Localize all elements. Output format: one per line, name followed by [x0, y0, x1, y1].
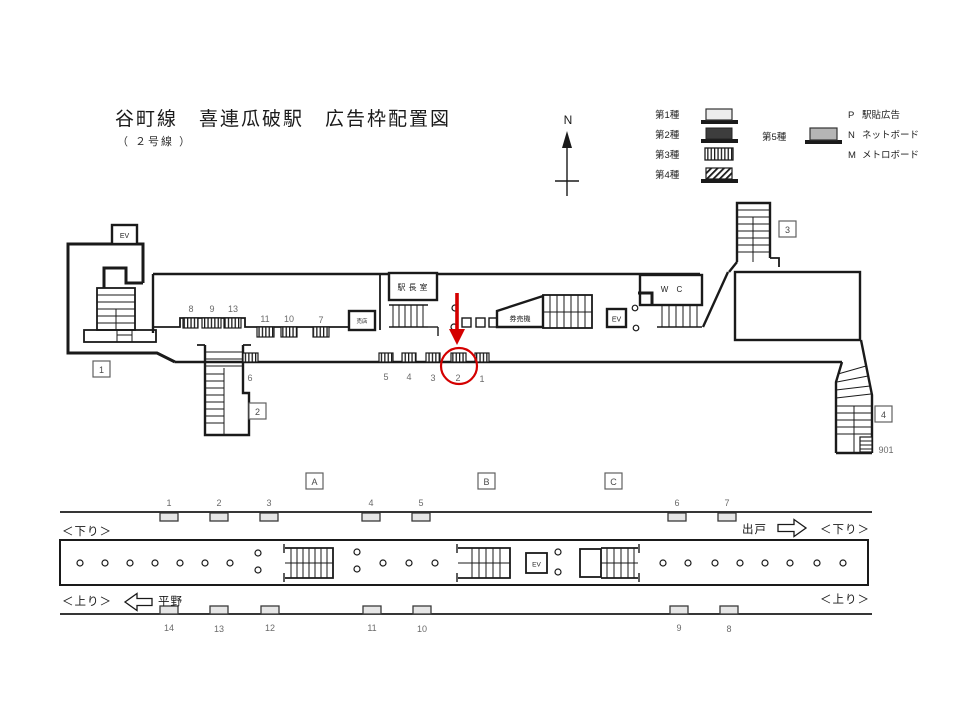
- ad-6-num: 6: [247, 373, 252, 383]
- poster-slot-10: [413, 606, 431, 614]
- left-stairs-icon: [84, 288, 156, 342]
- poster-slot-12: [261, 606, 279, 614]
- highlight-marker: [441, 293, 477, 384]
- ad-slot-8: [183, 318, 198, 328]
- poster-slot-1: [160, 513, 178, 521]
- ad-901-label: 901: [878, 445, 893, 455]
- platform-top-ad-slots: 1 2 3 4 5 6 7: [160, 498, 736, 521]
- section-c-label: C: [610, 477, 617, 487]
- legend-code-n: N: [848, 130, 855, 141]
- legend-type3-label: 第3種: [655, 149, 680, 161]
- poster-1-num: 1: [166, 498, 171, 508]
- highlight-arrow-head: [449, 329, 465, 345]
- ad-3-num: 3: [430, 373, 435, 383]
- up-right-label: ＜上り＞: [820, 593, 870, 606]
- station-ad-layout-diagram: 谷町線 喜連瓜破駅 広告枠配置図 （ ２号線 ） N 第1種 第2種 第3種 第…: [0, 0, 960, 720]
- poster-2-num: 2: [216, 498, 221, 508]
- right-room: [735, 272, 860, 340]
- ad-slot-5: [379, 353, 393, 362]
- poster-3-num: 3: [266, 498, 271, 508]
- poster-6-num: 6: [674, 498, 679, 508]
- next-station-up: 平野: [158, 595, 183, 608]
- north-compass-icon: N: [555, 113, 579, 196]
- down-right-label: ＜下り＞: [820, 523, 870, 536]
- legend-type1-label: 第1種: [655, 109, 680, 121]
- station-master-label: 駅長室: [398, 282, 431, 292]
- wc-room: W C: [638, 275, 702, 327]
- poster-10-num: 10: [417, 624, 427, 634]
- legend-code-m: M: [848, 150, 856, 161]
- legend-type2-bar: [701, 139, 738, 143]
- legend-type4-bar: [701, 179, 738, 183]
- next-station-down: 出戸: [742, 522, 767, 536]
- gate-frame: [462, 318, 471, 327]
- legend-type4-label: 第4種: [655, 169, 680, 181]
- poster-slot-11: [363, 606, 381, 614]
- ad-slot-7: [313, 327, 329, 337]
- ad-10-num: 10: [284, 314, 294, 324]
- concourse-upper-ad-slots: 8 9 13 11 10 7: [183, 304, 329, 337]
- poster-12-num: 12: [265, 623, 275, 633]
- legend-code-m-label: メトロボード: [862, 150, 919, 161]
- ticket-machine-label: 券売機: [510, 314, 531, 323]
- down-left-label: ＜下り＞: [62, 525, 112, 538]
- poster-slot-8: [720, 606, 738, 614]
- stairway-4: 901: [836, 340, 894, 455]
- stairway-3: [729, 203, 779, 272]
- poster-slot-9: [670, 606, 688, 614]
- platform-ev-label: EV: [532, 562, 541, 569]
- elevator-mid: EV: [607, 309, 626, 327]
- legend-type5-label: 第5種: [762, 131, 787, 143]
- ad-1-num: 1: [479, 374, 484, 384]
- ad-11-num: 11: [260, 314, 269, 324]
- station-master-office: 駅長室: [380, 273, 438, 336]
- office-gate-icon: [389, 305, 438, 336]
- ad-slot-3: [426, 353, 440, 362]
- wc-stairs-icon: [657, 305, 702, 327]
- ad-slot-10: [281, 327, 297, 337]
- section-b-label: B: [483, 477, 489, 487]
- page-subtitle: （ ２号線 ）: [117, 134, 192, 148]
- legend-type5-swatch: [810, 128, 837, 140]
- ad-slot-9: [202, 318, 221, 328]
- legend: 第1種 第2種 第3種 第4種 第5種 P 駅貼広告 N ネットボード M メト…: [655, 109, 919, 183]
- ad-slot-4: [402, 353, 416, 362]
- ad-8-num: 8: [188, 304, 193, 314]
- poster-5-num: 5: [418, 498, 423, 508]
- arrow-left-icon: [125, 594, 152, 611]
- platform-bottom-ad-slots: 14 13 12 11 10 9 8: [160, 606, 738, 634]
- legend-type5-bar: [805, 140, 842, 144]
- elevator-upper-label: EV: [120, 233, 130, 240]
- ad-slot-13: [224, 318, 241, 328]
- ad-5-num: 5: [383, 372, 388, 382]
- poster-slot-7: [718, 513, 736, 521]
- poster-slot-13: [210, 606, 228, 614]
- poster-slot-2: [210, 513, 228, 521]
- legend-code-n-label: ネットボード: [862, 130, 919, 141]
- poster-slot-4: [362, 513, 380, 521]
- ticket-machine-booth: 券売機: [497, 296, 543, 327]
- poster-4-num: 4: [368, 498, 373, 508]
- elevator-mid-label: EV: [612, 317, 622, 324]
- section-a-label: A: [311, 477, 317, 487]
- legend-code-p-label: 駅貼広告: [862, 109, 900, 121]
- ad-slot-901: 901: [860, 437, 894, 455]
- compass-label: N: [564, 113, 573, 127]
- poster-14-num: 14: [164, 623, 174, 633]
- poster-7-num: 7: [724, 498, 729, 508]
- gate-frame: [476, 318, 485, 327]
- exit-1-label: 1: [99, 365, 104, 375]
- ad-9-num: 9: [209, 304, 214, 314]
- poster-9-num: 9: [676, 623, 681, 633]
- poster-slot-5: [412, 513, 430, 521]
- poster-11-num: 11: [367, 623, 376, 633]
- kiosk-label: 売店: [356, 317, 368, 325]
- legend-type2-swatch: [706, 128, 732, 139]
- concourse-lower-ad-slots: 6 5 4 3 2 1: [243, 353, 489, 384]
- legend-type3-swatch: [705, 148, 733, 160]
- poster-slot-3: [260, 513, 278, 521]
- exit-2-label: 2: [255, 407, 260, 417]
- page-title: 谷町線 喜連瓜破駅 広告枠配置図: [115, 108, 451, 130]
- ad-slot-11: [257, 327, 274, 337]
- ad-slot-2: [451, 353, 466, 362]
- platform-elevator: EV: [526, 553, 547, 573]
- poster-slot-6: [668, 513, 686, 521]
- poster-8-num: 8: [726, 624, 731, 634]
- legend-code-p: P: [848, 110, 854, 121]
- legend-type1-swatch: [706, 109, 732, 120]
- concourse-mid-stairs-icon: [543, 295, 592, 328]
- exit-4-label: 4: [881, 410, 886, 420]
- platform-section-markers: A B C: [306, 473, 622, 489]
- poster-13-num: 13: [214, 624, 224, 634]
- ad-4-num: 4: [406, 372, 411, 382]
- ad-7-num: 7: [318, 315, 323, 325]
- ad-slot-6: [243, 353, 258, 362]
- exit-3-label: 3: [785, 225, 790, 235]
- arrow-right-icon: [778, 520, 806, 537]
- legend-type2-label: 第2種: [655, 129, 680, 141]
- concourse-left-structure: EV: [68, 225, 175, 362]
- ad-2-num: 2: [455, 373, 460, 383]
- kiosk: 売店: [349, 311, 375, 330]
- legend-type4-swatch: [706, 168, 732, 179]
- up-left-label: ＜上り＞: [62, 595, 112, 608]
- wc-label: W C: [661, 285, 686, 294]
- ad-13-num: 13: [228, 304, 238, 314]
